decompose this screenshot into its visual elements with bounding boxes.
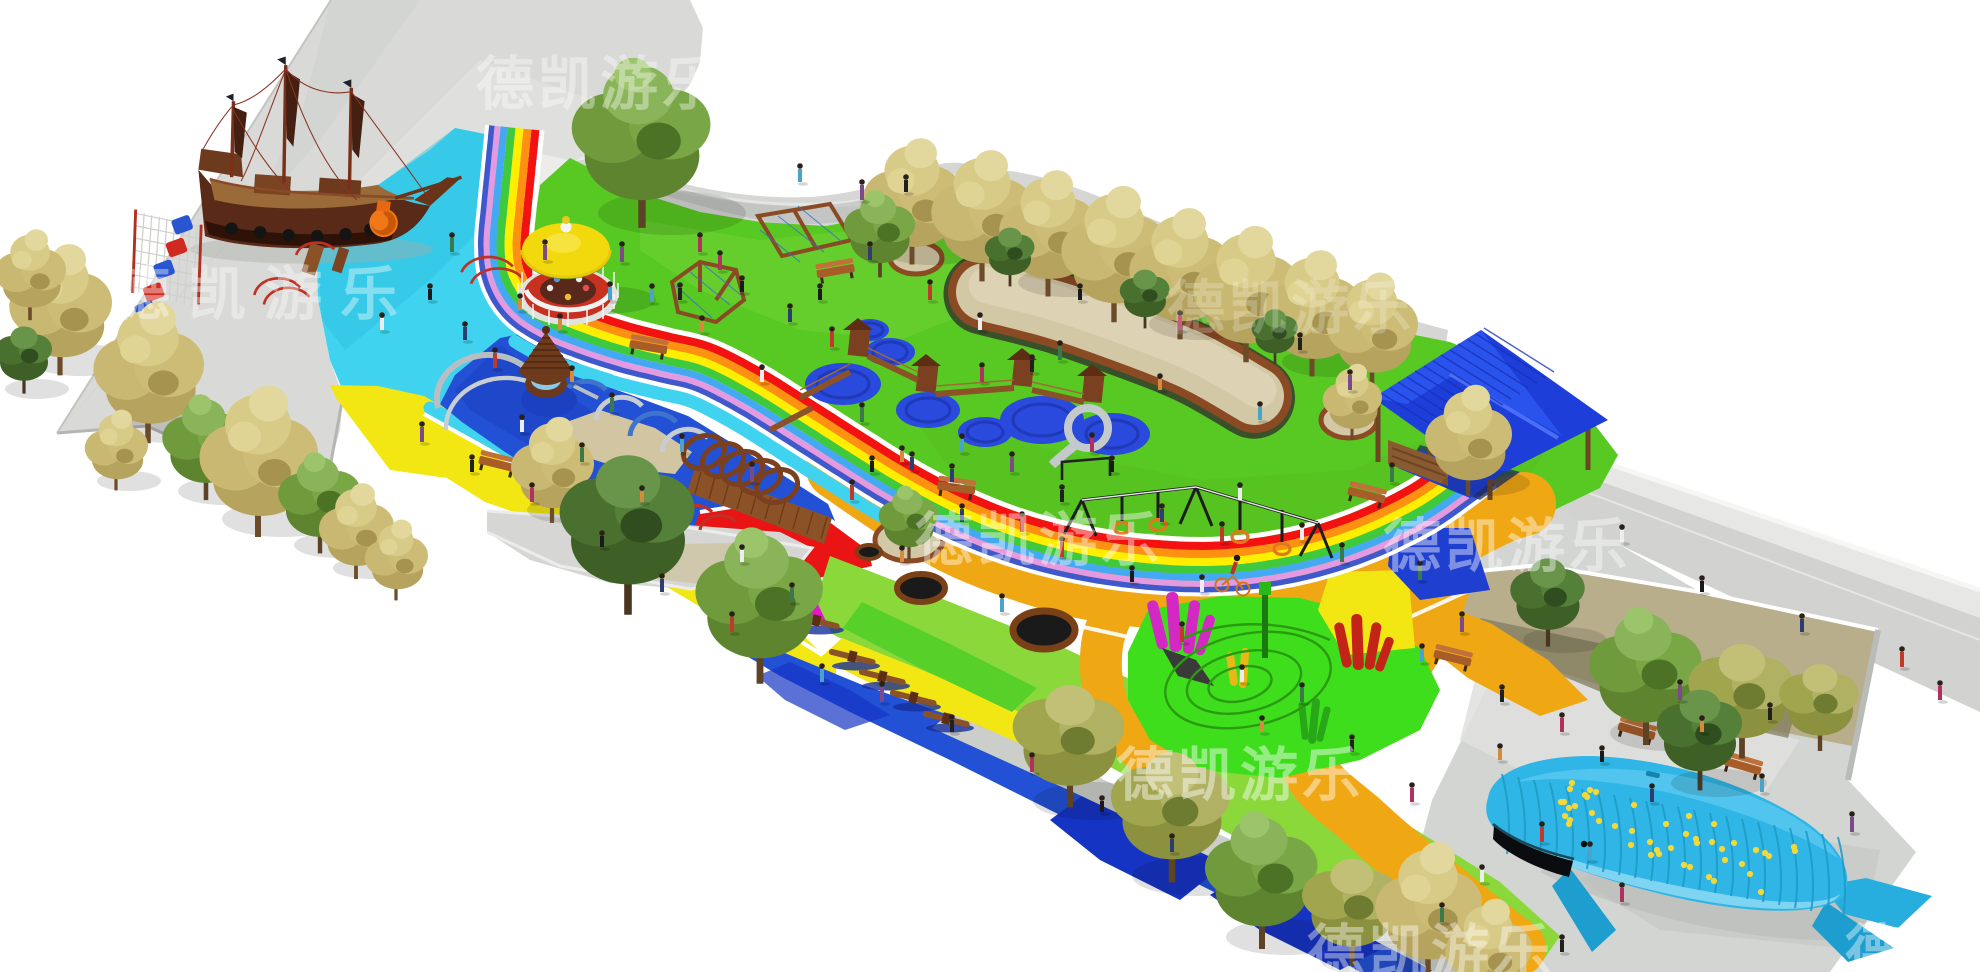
svg-text:德凯游乐: 德凯游乐	[1116, 743, 1364, 808]
svg-text:德凯游乐: 德凯游乐	[1383, 514, 1631, 579]
svg-text:德凯游乐: 德凯游乐	[476, 52, 724, 117]
svg-text:德凯游乐: 德凯游乐	[1845, 920, 1980, 972]
svg-text:德凯游乐: 德凯游乐	[915, 508, 1163, 573]
svg-text:德凯游乐: 德凯游乐	[1167, 276, 1415, 341]
svg-text:德凯游乐: 德凯游乐	[1307, 920, 1555, 972]
svg-text:德凯游乐: 德凯游乐	[112, 262, 416, 327]
